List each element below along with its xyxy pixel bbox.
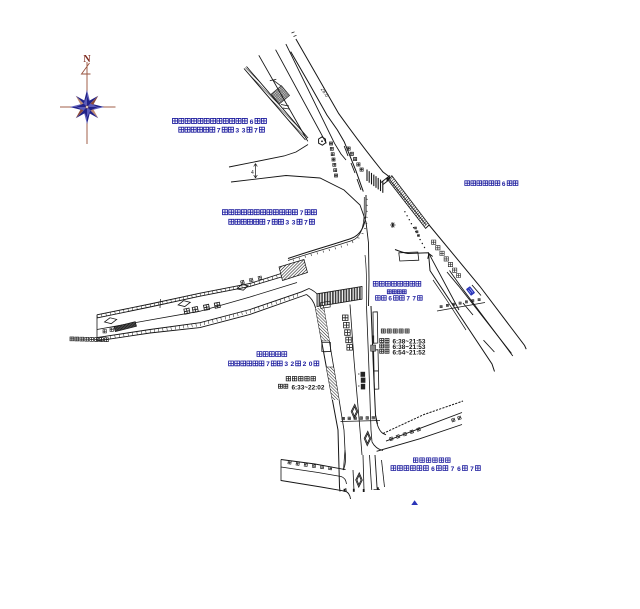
- svg-text:4: 4: [251, 170, 254, 176]
- svg-text:6: 6: [457, 466, 461, 473]
- svg-text:7: 7: [304, 220, 308, 227]
- svg-text:7: 7: [451, 466, 455, 473]
- svg-text:3: 3: [284, 361, 288, 368]
- svg-text:2: 2: [303, 361, 307, 368]
- svg-text:7: 7: [266, 361, 270, 368]
- svg-text:7: 7: [406, 296, 410, 303]
- svg-text:6: 6: [388, 296, 392, 303]
- svg-text:6:54~21:52: 6:54~21:52: [393, 349, 426, 356]
- svg-text:6: 6: [431, 466, 435, 473]
- svg-text:7: 7: [217, 128, 221, 135]
- svg-text:7: 7: [470, 466, 474, 473]
- svg-text:3: 3: [242, 128, 246, 135]
- svg-text:6: 6: [502, 181, 506, 188]
- svg-text:6: 6: [250, 119, 254, 126]
- svg-text:3: 3: [292, 220, 296, 227]
- svg-text:7: 7: [412, 296, 416, 303]
- svg-text:2: 2: [290, 361, 294, 368]
- svg-text:0: 0: [309, 361, 313, 368]
- svg-text:3: 3: [235, 128, 239, 135]
- svg-text:6:33~22:02: 6:33~22:02: [292, 385, 325, 392]
- svg-text:7: 7: [300, 210, 304, 217]
- svg-text:7: 7: [254, 128, 258, 135]
- svg-text:3: 3: [285, 220, 289, 227]
- svg-text:7: 7: [267, 220, 271, 227]
